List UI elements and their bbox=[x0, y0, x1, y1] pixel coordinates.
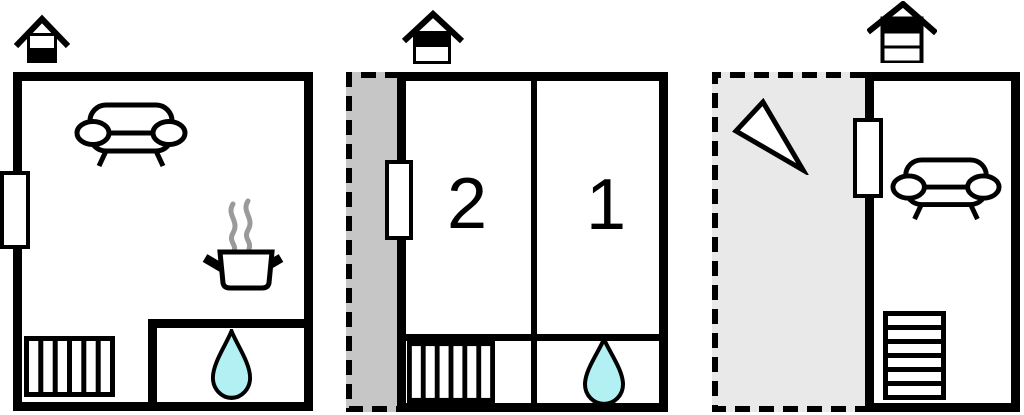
sofa-icon bbox=[74, 102, 188, 168]
stairs-icon bbox=[883, 311, 946, 400]
window-icon bbox=[853, 118, 883, 198]
water-drop-icon bbox=[581, 337, 627, 407]
window-icon bbox=[0, 171, 30, 249]
chimney-icon bbox=[867, 1, 937, 63]
room-label-1: 1 bbox=[572, 169, 640, 241]
floor-plan-diagram: 2 1 bbox=[0, 0, 1024, 415]
window-icon bbox=[385, 160, 413, 240]
direction-triangle-icon bbox=[731, 97, 809, 175]
chimney-icon bbox=[14, 8, 70, 64]
stairs-icon bbox=[24, 336, 115, 397]
interior-wall bbox=[148, 319, 313, 328]
chimney-icon bbox=[402, 8, 464, 64]
water-drop-icon bbox=[209, 329, 254, 401]
sofa-icon bbox=[890, 157, 1002, 221]
interior-wall bbox=[148, 319, 157, 411]
terrace-dashed-area bbox=[346, 72, 400, 412]
interior-wall bbox=[531, 81, 537, 403]
room-label-2: 2 bbox=[433, 168, 501, 240]
stairs-icon bbox=[407, 341, 495, 403]
cooking-pot-icon bbox=[197, 196, 289, 291]
